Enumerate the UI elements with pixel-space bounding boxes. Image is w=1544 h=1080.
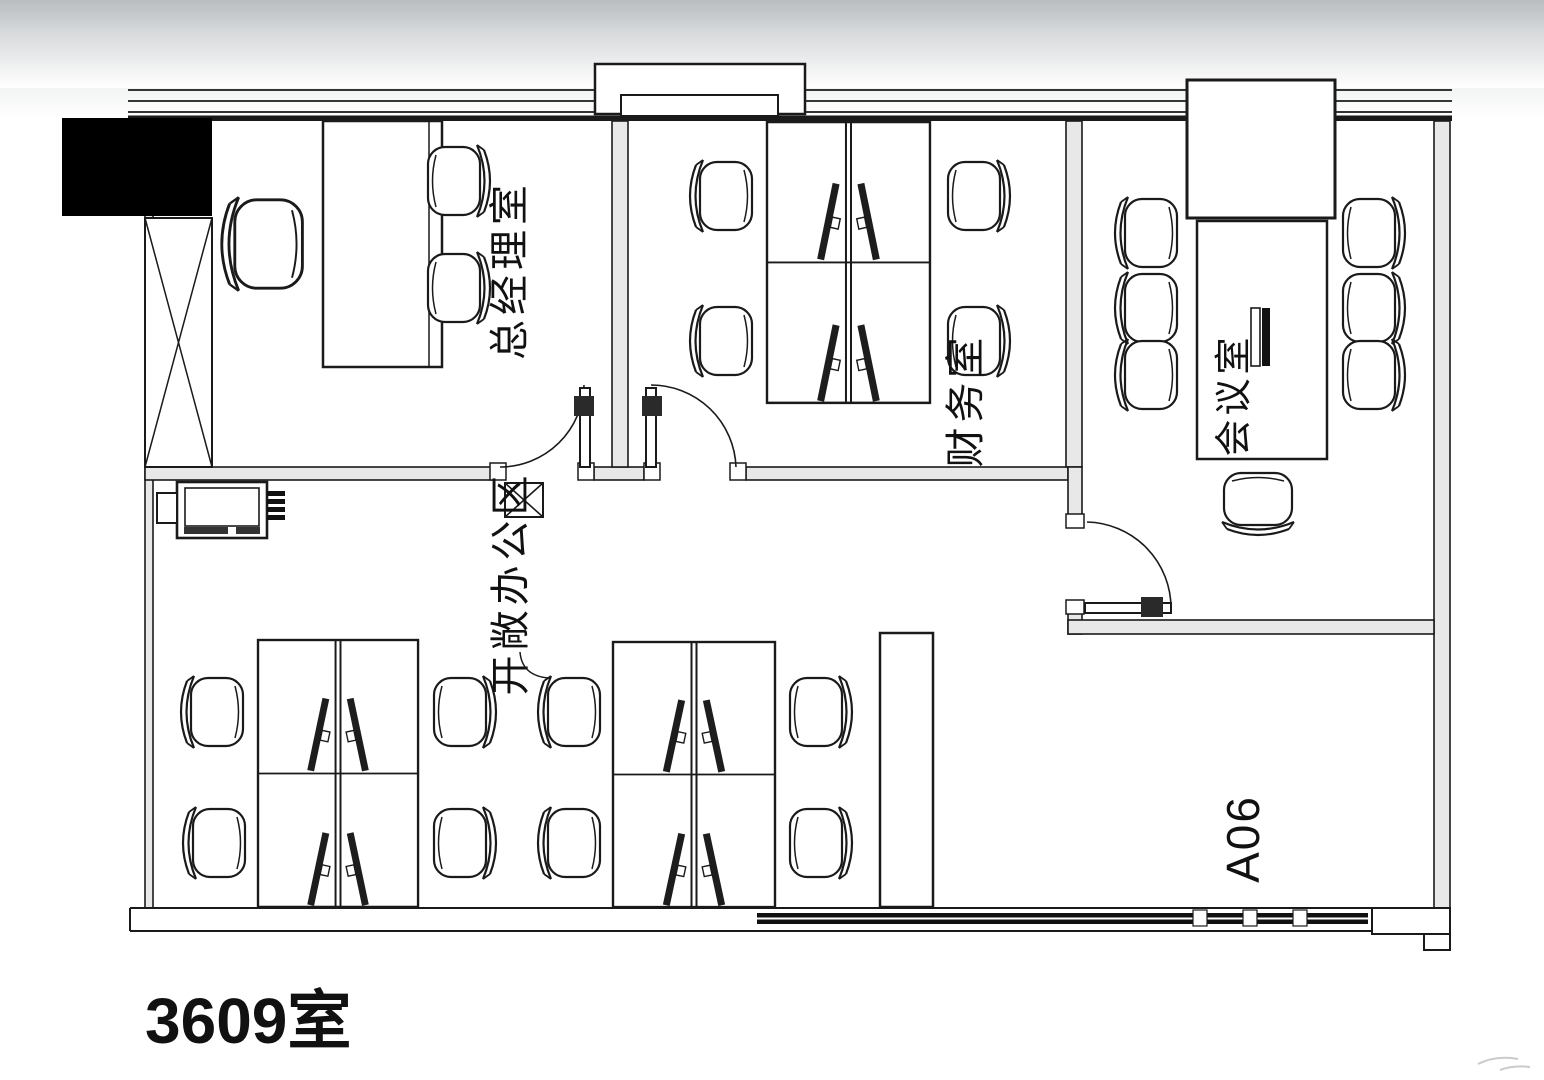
- office-chair: [790, 676, 852, 748]
- shaft-hatch: [145, 218, 212, 467]
- open-office-label: 开敞办公区: [489, 471, 533, 696]
- meeting-chair: [1115, 197, 1177, 269]
- meeting-door: [1085, 522, 1171, 617]
- office-chair: [181, 676, 243, 748]
- printer-tray: [157, 493, 177, 523]
- guest-chair: [428, 145, 490, 217]
- door-jambs: [490, 463, 1084, 614]
- office-chair: [790, 807, 852, 879]
- executive-chair: [222, 197, 303, 291]
- gm-desk: [323, 121, 442, 367]
- office-chair: [538, 676, 600, 748]
- meeting-door-handle: [1141, 597, 1163, 617]
- guest-chair: [428, 252, 490, 324]
- floor-plan-drawing: 总经理室 财务室 会议室: [0, 0, 1544, 1080]
- meeting-bottom-wall: [1068, 620, 1434, 634]
- office-chair: [434, 807, 496, 879]
- room-finance: 财务室: [642, 122, 1010, 468]
- corner-wall-foot: [1424, 934, 1450, 950]
- meeting-chair: [1343, 339, 1405, 411]
- finance-room-label: 财务室: [944, 333, 988, 468]
- gm-door: [500, 385, 594, 467]
- gm-door-handle: [574, 396, 594, 416]
- corner-wall-block: [1372, 908, 1450, 934]
- office-chair: [183, 807, 245, 879]
- printer: [157, 482, 285, 538]
- office-chair: [948, 160, 1010, 232]
- finance-door: [642, 385, 736, 467]
- wall-finance-meeting: [1066, 121, 1082, 467]
- office-chair: [538, 807, 600, 879]
- plan-title: 3609室: [145, 985, 351, 1057]
- tall-cabinet: [880, 633, 933, 907]
- meeting-chair: [1222, 473, 1294, 535]
- office-chair: [434, 676, 496, 748]
- meeting-wall-cabinet: [1187, 80, 1335, 218]
- unit-code-label: A06: [1217, 795, 1269, 883]
- room-open-office: 开敞办公区: [157, 471, 933, 908]
- office-chair: [690, 305, 752, 377]
- office-chair: [690, 160, 752, 232]
- gm-office-label: 总经理室: [488, 180, 532, 360]
- meeting-chair: [1343, 272, 1405, 344]
- open-workstation-cluster-1: [258, 640, 418, 907]
- meeting-chair: [1343, 197, 1405, 269]
- open-workstation-cluster-2: [613, 642, 775, 908]
- meeting-chair: [1115, 272, 1177, 344]
- floor-plan-page: 总经理室 财务室 会议室: [0, 0, 1544, 1080]
- window-glazing-line: [757, 913, 1368, 918]
- finance-workstation-cluster: [767, 122, 930, 403]
- window-glazing-line: [757, 920, 1368, 925]
- right-wall: [1434, 121, 1450, 908]
- facade-shaft-tab: [595, 64, 805, 116]
- black-mask-block: [62, 118, 212, 216]
- scan-smudge: [1478, 1058, 1530, 1070]
- bottom-wall-window-band: [130, 908, 1450, 950]
- wall-gm-finance: [612, 121, 628, 467]
- room-gm-office: 总经理室: [222, 121, 594, 467]
- meeting-room-label: 会议室: [1213, 334, 1254, 457]
- interior-partition-horizontal: [145, 467, 1068, 480]
- finance-door-handle: [642, 396, 662, 416]
- meeting-chair: [1115, 339, 1177, 411]
- room-meeting: 会议室: [1085, 197, 1405, 617]
